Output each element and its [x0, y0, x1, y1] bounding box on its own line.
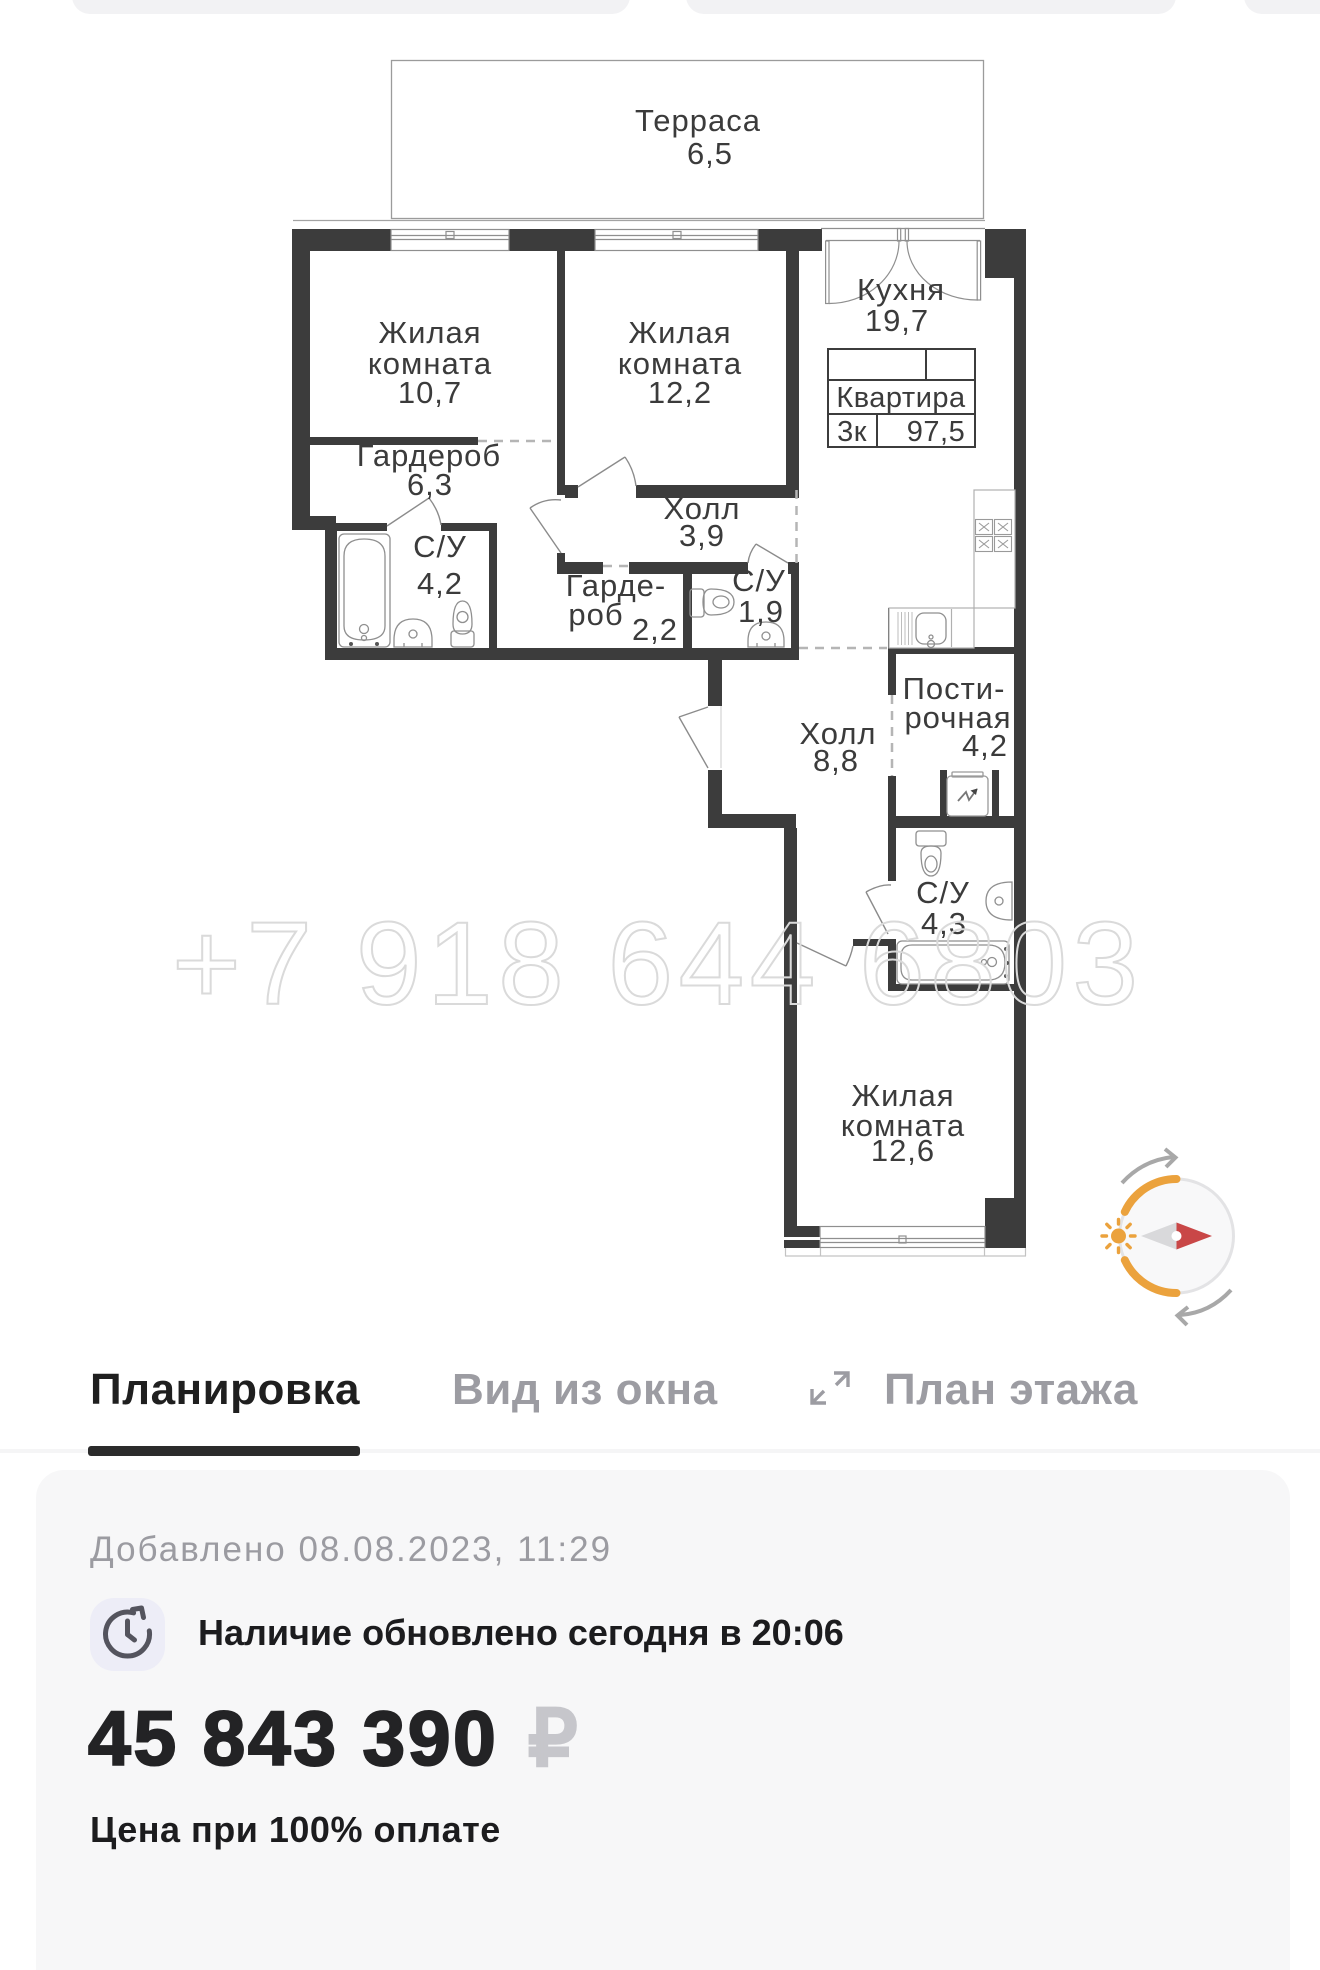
- svg-text:Квартира: Квартира: [836, 382, 966, 414]
- svg-text:Кухня: Кухня: [857, 272, 945, 307]
- svg-text:4,2: 4,2: [417, 566, 463, 601]
- svg-text:10,7: 10,7: [398, 375, 462, 410]
- svg-text:Жилая: Жилая: [378, 315, 481, 350]
- svg-text:6,3: 6,3: [407, 467, 453, 502]
- svg-text:роб: роб: [568, 597, 623, 632]
- svg-text:12,6: 12,6: [871, 1133, 935, 1168]
- svg-text:4,2: 4,2: [962, 728, 1008, 763]
- svg-text:Жилая: Жилая: [628, 315, 731, 350]
- svg-text:Терраса: Терраса: [635, 103, 761, 138]
- svg-text:2,2: 2,2: [632, 612, 678, 647]
- svg-text:8,8: 8,8: [813, 743, 859, 778]
- svg-text:1,9: 1,9: [738, 594, 784, 629]
- svg-text:19,7: 19,7: [865, 303, 929, 338]
- svg-text:С/У: С/У: [732, 563, 786, 598]
- svg-text:97,5: 97,5: [907, 416, 965, 448]
- svg-text:3к: 3к: [837, 416, 867, 448]
- svg-text:С/У: С/У: [413, 529, 467, 564]
- svg-text:12,2: 12,2: [648, 375, 712, 410]
- svg-text:+7 918 644 6803: +7 918 644 6803: [172, 898, 1144, 1030]
- svg-text:3,9: 3,9: [679, 518, 725, 553]
- svg-text:6,5: 6,5: [687, 136, 733, 171]
